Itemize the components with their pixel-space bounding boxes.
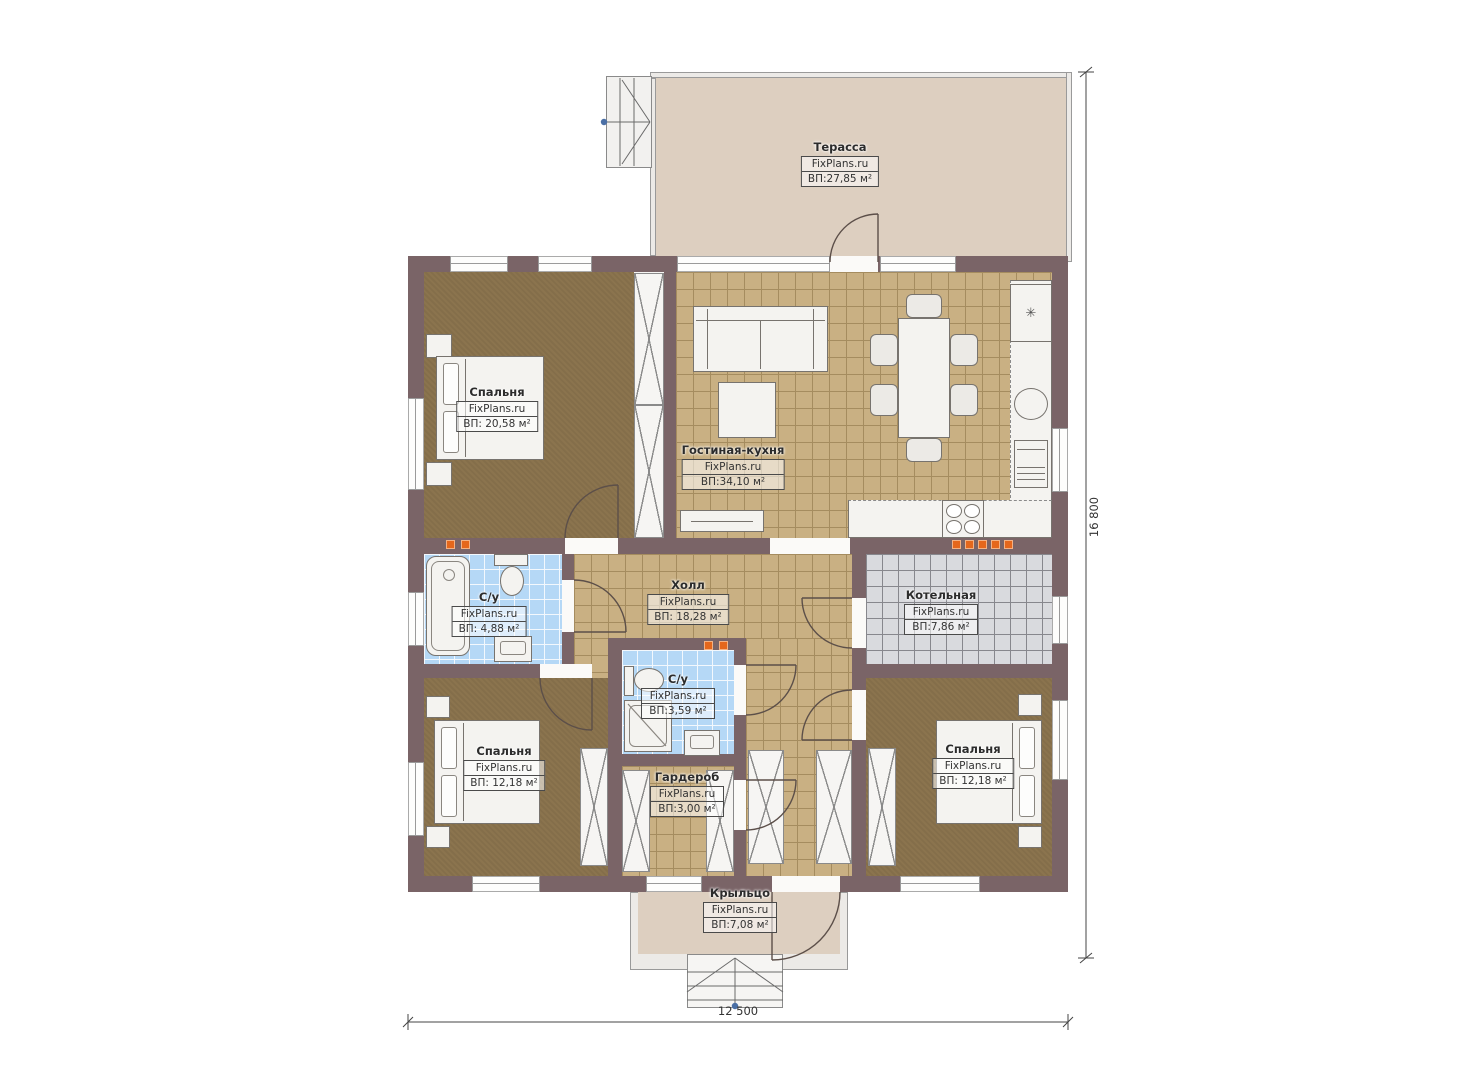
room-label-living-kitchen: Гостиная-кухня FixPlans.ru ВП:34,10 м² [682, 443, 785, 490]
dimension-width: 12 500 [718, 1004, 758, 1018]
room-name: С/у [452, 590, 527, 604]
room-name: Котельная [904, 588, 978, 602]
room-label-bedroom-bottom-left: Спальня FixPlans.ru ВП: 12,18 м² [463, 744, 545, 791]
room-label-bedroom-bottom-right: Спальня FixPlans.ru ВП: 12,18 м² [932, 742, 1014, 789]
brand-text: FixPlans.ru [933, 759, 1013, 774]
room-area: ВП:3,00 м² [651, 802, 723, 816]
room-name: Гардероб [650, 770, 724, 784]
room-label-terrace: Терасса FixPlans.ru ВП:27,85 м² [801, 140, 879, 187]
terrace-stairs-marks [601, 78, 650, 166]
brand-text: FixPlans.ru [704, 903, 776, 918]
room-label-bathroom-mid: С/у FixPlans.ru ВП:3,59 м² [641, 672, 715, 719]
room-label-hall: Холл FixPlans.ru ВП: 18,28 м² [647, 578, 729, 625]
brand-text: FixPlans.ru [905, 605, 977, 620]
floor-plan: ✳ [0, 0, 1474, 1080]
room-label-porch: Крыльцо FixPlans.ru ВП:7,08 м² [703, 886, 777, 933]
room-label-wardrobe: Гардероб FixPlans.ru ВП:3,00 м² [650, 770, 724, 817]
room-area: ВП: 12,18 м² [933, 774, 1013, 788]
room-name: Холл [647, 578, 729, 592]
room-area: ВП:27,85 м² [802, 172, 878, 186]
room-area: ВП:7,86 м² [905, 620, 977, 634]
room-name: Терасса [801, 140, 879, 154]
room-area: ВП: 12,18 м² [464, 776, 544, 790]
brand-text: FixPlans.ru [802, 157, 878, 172]
room-label-bedroom-top: Спальня FixPlans.ru ВП: 20,58 м² [456, 385, 538, 432]
room-name: Спальня [932, 742, 1014, 756]
room-area: ВП:7,08 м² [704, 918, 776, 932]
room-name: Крыльцо [703, 886, 777, 900]
room-area: ВП:3,59 м² [642, 704, 714, 718]
brand-text: FixPlans.ru [648, 595, 728, 610]
room-name: Спальня [456, 385, 538, 399]
brand-text: FixPlans.ru [464, 761, 544, 776]
room-name: С/у [641, 672, 715, 686]
brand-text: FixPlans.ru [453, 607, 526, 622]
room-area: ВП: 4,88 м² [453, 622, 526, 636]
brand-text: FixPlans.ru [642, 689, 714, 704]
porch-steps-marks [687, 958, 783, 1009]
room-name: Спальня [463, 744, 545, 758]
room-area: ВП: 20,58 м² [457, 417, 537, 431]
dimension-height: 16 800 [1087, 497, 1101, 537]
room-label-boiler: Котельная FixPlans.ru ВП:7,86 м² [904, 588, 978, 635]
room-label-bathroom-left: С/у FixPlans.ru ВП: 4,88 м² [452, 590, 527, 637]
brand-text: FixPlans.ru [683, 460, 784, 475]
brand-text: FixPlans.ru [651, 787, 723, 802]
room-name: Гостиная-кухня [682, 443, 785, 457]
room-area: ВП:34,10 м² [683, 475, 784, 489]
room-area: ВП: 18,28 м² [648, 610, 728, 624]
brand-text: FixPlans.ru [457, 402, 537, 417]
